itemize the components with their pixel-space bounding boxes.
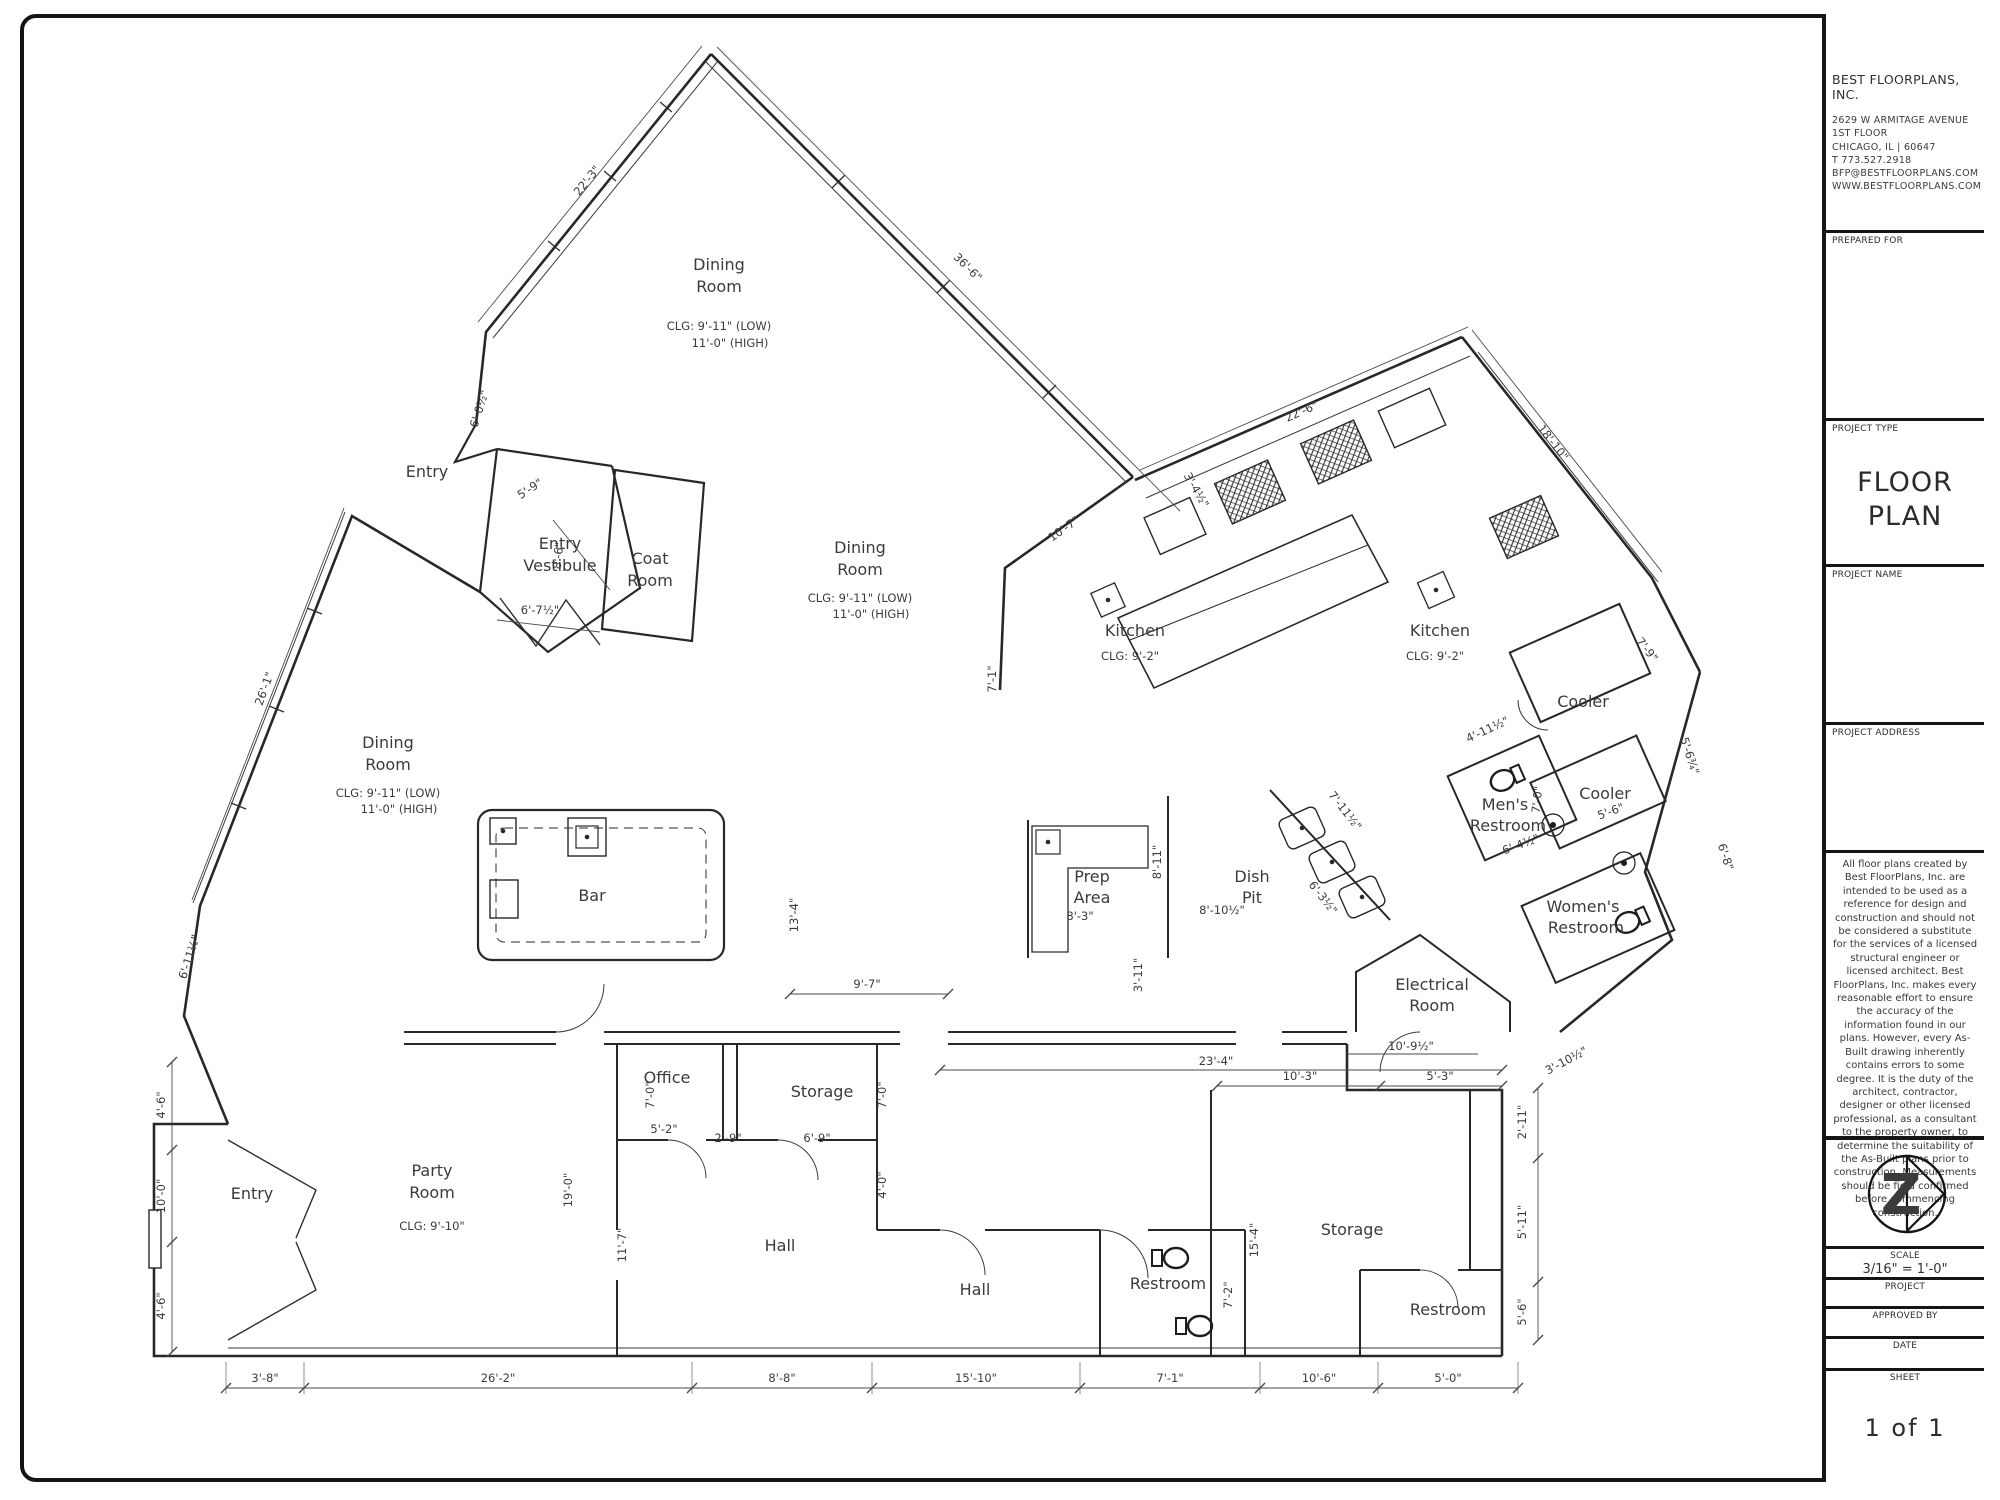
project-name-label: PROJECT NAME (1826, 570, 1984, 580)
room-label: Women's (1547, 897, 1620, 916)
room-label: Cooler (1579, 784, 1631, 803)
room-label: Kitchen (1410, 621, 1470, 640)
dim-label: 18'-10" (1535, 422, 1572, 464)
dim-label: 13'-4" (787, 898, 801, 933)
dim-label: 6'-0½" (467, 388, 492, 429)
floor-plan-sheet: Dining Room CLG: 9'-11" (LOW) 11'-0" (HI… (0, 0, 2000, 1500)
room-label: Dining (362, 733, 414, 752)
floor-plan-drawing: Dining Room CLG: 9'-11" (LOW) 11'-0" (HI… (0, 0, 2000, 1500)
dim-label: 8'-10½" (1199, 903, 1245, 917)
scale-label: SCALE (1826, 1251, 1984, 1261)
dim-label: 6'-7½" (521, 603, 559, 617)
dim-label: 4'-11½" (1464, 713, 1511, 745)
room-label: Dining (834, 538, 886, 557)
dim-label: 2'-9" (714, 1131, 741, 1145)
dim-label: 15'-4" (1247, 1223, 1261, 1258)
scale-value: 3/16" = 1'-0" (1826, 1262, 1984, 1277)
dim-label: 3'-11" (1131, 958, 1145, 993)
title-block: BEST FLOORPLANS, INC. 2629 W ARMITAGE AV… (1822, 14, 1984, 1482)
clg-label: CLG: 9'-10" (399, 1219, 464, 1233)
dim-label: 3'-8" (251, 1371, 278, 1385)
company-phone: T 773.527.2918 (1826, 154, 1984, 167)
clg-label: 11'-0" (HIGH) (833, 607, 910, 621)
room-label: Storage (791, 1082, 854, 1101)
dim-label: 4'-6" (154, 1091, 168, 1118)
dim-label: 5'-6¾" (1677, 735, 1702, 776)
dim-label: 5'-3" (1426, 1069, 1453, 1083)
dim-label: 6'-8" (1715, 842, 1737, 872)
project-type-value-line1: FLOOR (1826, 466, 1984, 500)
dim-label: 7'-2" (1221, 1281, 1235, 1308)
dim-label: 5'-6" (1595, 800, 1625, 822)
dim-label: 36'-6" (951, 250, 985, 284)
dim-label: 22'-6" (1283, 398, 1320, 425)
room-labels: Dining Room CLG: 9'-11" (LOW) 11'-0" (HI… (231, 255, 1632, 1319)
interior-walls (404, 790, 1510, 1356)
dim-label: 5'-9" (515, 475, 545, 502)
company-address-line2: 1ST FLOOR (1826, 127, 1984, 140)
clg-label: CLG: 9'-2" (1101, 649, 1159, 663)
dim-label: 7'-1" (1156, 1371, 1183, 1385)
dim-label: 9'-7" (853, 977, 880, 991)
sheet-label: SHEET (1826, 1373, 1984, 1383)
room-label: Cooler (1557, 692, 1609, 711)
dim-label: 7'-0" (643, 1081, 657, 1108)
room-label: Kitchen (1105, 621, 1165, 640)
company-logo: Z (1865, 1152, 1949, 1236)
divider (1826, 230, 1984, 233)
room-label: Hall (960, 1280, 991, 1299)
room-label: Dining (693, 255, 745, 274)
date-label: DATE (1826, 1341, 1984, 1351)
company-address-line3: CHICAGO, IL | 60647 (1826, 141, 1984, 154)
room-label: Prep (1074, 867, 1110, 886)
divider (1826, 1246, 1984, 1249)
dim-label: 5'-6" (1515, 1298, 1529, 1325)
divider (1826, 1336, 1984, 1339)
bar-counter (478, 810, 724, 960)
dim-label: 10'-9½" (1388, 1039, 1434, 1053)
company-address-line1: 2629 W ARMITAGE AVENUE (1826, 114, 1984, 127)
dim-label: 15'-10" (955, 1371, 997, 1385)
dim-label: 19'-0" (561, 1173, 575, 1208)
room-label: Room (409, 1183, 455, 1202)
room-label: Men's (1482, 795, 1529, 814)
dim-label: 8'-6" (550, 541, 567, 570)
room-label: Storage (1321, 1220, 1384, 1239)
company-email: BFP@BESTFLOORPLANS.COM (1826, 167, 1984, 180)
dim-label: 8'-11" (1150, 845, 1164, 880)
door-arcs (556, 700, 1548, 1308)
dim-label: 8'-8" (768, 1371, 795, 1385)
room-label: Restroom (1410, 1300, 1486, 1319)
project-label: PROJECT (1826, 1282, 1984, 1292)
dim-label: 10'-0" (154, 1179, 168, 1214)
room-label: Bar (578, 886, 606, 905)
dim-label: 6'-9" (803, 1131, 830, 1145)
divider (1826, 564, 1984, 567)
room-label: Coat (631, 549, 668, 568)
exterior-walls (149, 54, 1700, 1356)
room-label: Electrical (1395, 975, 1469, 994)
project-type-value-line2: PLAN (1826, 500, 1984, 534)
room-label: Pit (1242, 888, 1262, 907)
room-label: Room (696, 277, 742, 296)
approved-by-label: APPROVED BY (1826, 1311, 1984, 1321)
dim-label: 7'-9" (1633, 634, 1661, 664)
dim-label: 10'-7" (1046, 513, 1082, 544)
dimension-lines (167, 46, 1662, 1394)
company-website: WWW.BESTFLOORPLANS.COM (1826, 180, 1984, 193)
clg-label: CLG: 9'-11" (LOW) (808, 591, 912, 605)
wall-inner-lines (193, 61, 1658, 1348)
dim-label: 8'-3" (1066, 909, 1093, 923)
dim-label: 3'-10½" (1543, 1044, 1590, 1078)
room-label: Room (1409, 996, 1455, 1015)
dim-label: 10'-3" (1283, 1069, 1318, 1083)
divider (1826, 1306, 1984, 1309)
room-label: Room (837, 560, 883, 579)
dim-label: 6'-3½" (1306, 878, 1341, 917)
room-label: Party (411, 1161, 452, 1180)
window-ticks (231, 102, 1056, 809)
dim-label: 7'-1" (985, 665, 999, 692)
divider (1826, 1136, 1984, 1140)
dim-label: 6'-11½" (175, 933, 202, 981)
room-label: Entry (406, 462, 449, 481)
divider (1826, 722, 1984, 725)
room-label: Room (627, 571, 673, 590)
dim-label: 26'-1" (252, 670, 277, 707)
kitchen-equipment (1091, 388, 1559, 688)
dim-label: 5'-0" (1434, 1371, 1461, 1385)
company-name: BEST FLOORPLANS, INC. (1826, 72, 1984, 102)
sheet-number: 1 of 1 (1826, 1414, 1984, 1442)
prepared-for-label: PREPARED FOR (1826, 236, 1984, 246)
project-type-label: PROJECT TYPE (1826, 424, 1984, 434)
clg-label: CLG: 9'-2" (1406, 649, 1464, 663)
dim-label: 7'-0" (875, 1081, 889, 1108)
dim-label: 10'-6" (1302, 1371, 1337, 1385)
clg-label: 11'-0" (HIGH) (692, 336, 769, 350)
dim-label: 26'-2" (481, 1371, 516, 1385)
dim-label: 3'-4½" (1181, 470, 1212, 510)
dim-label: 23'-4" (1199, 1054, 1234, 1068)
room-label: Hall (765, 1236, 796, 1255)
logo-letter: Z (1881, 1163, 1922, 1228)
room-label: Dish (1234, 867, 1269, 886)
dim-label: 2'-11" (1515, 1105, 1529, 1140)
clg-label: CLG: 9'-11" (LOW) (336, 786, 440, 800)
dim-label: 6'-4½" (1500, 831, 1541, 857)
clg-label: 11'-0" (HIGH) (361, 802, 438, 816)
room-label: Restroom (1130, 1274, 1206, 1293)
room-label: Entry (231, 1184, 274, 1203)
room-label: Restroom (1548, 918, 1624, 937)
project-address-label: PROJECT ADDRESS (1826, 728, 1984, 738)
divider (1826, 1277, 1984, 1280)
dim-label: 5'-11" (1515, 1205, 1529, 1240)
dim-label: 7'-0" (1529, 785, 1546, 814)
clg-label: CLG: 9'-11" (LOW) (667, 319, 771, 333)
room-label: Room (365, 755, 411, 774)
dim-label: 4'-6" (154, 1292, 168, 1319)
dim-label: 4'-0" (875, 1171, 889, 1198)
dim-label: 5'-2" (650, 1122, 677, 1136)
dim-label: 7'-11½" (1326, 788, 1365, 833)
dim-label: 11'-7" (615, 1228, 629, 1263)
divider (1826, 1368, 1984, 1371)
divider (1826, 418, 1984, 421)
divider (1826, 850, 1984, 853)
room-label: Area (1074, 888, 1111, 907)
